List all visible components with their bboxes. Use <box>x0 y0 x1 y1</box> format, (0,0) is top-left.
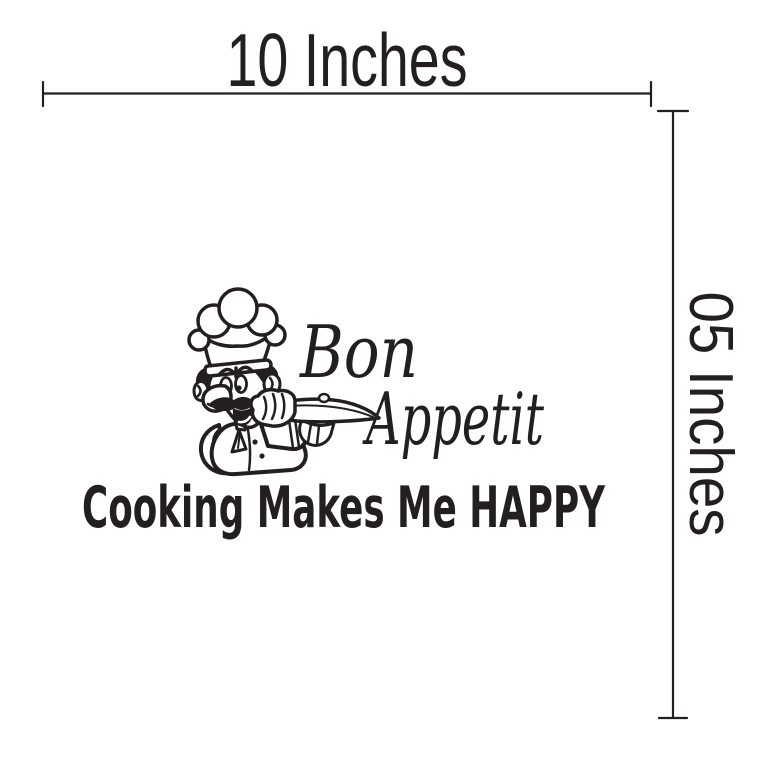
chef-jacket-button <box>252 439 257 444</box>
decal-diagram: 10 Inches 05 Inches <box>0 0 768 768</box>
chef-pupil-right <box>236 385 241 390</box>
chef-jacket-button <box>259 453 264 458</box>
decal-script-appetit: Appetit <box>362 377 545 461</box>
decal-tagline: Cooking Makes Me HAPPY <box>82 475 605 541</box>
height-dimension: 05 Inches <box>658 111 745 718</box>
width-dimension: 10 Inches <box>43 18 651 106</box>
chef-eye-right <box>236 376 247 393</box>
chef-hat-puff <box>219 289 257 327</box>
product-sizing-image: 10 Inches 05 Inches <box>0 0 768 768</box>
chef-tray-knob <box>319 394 329 402</box>
height-dimension-label: 05 Inches <box>676 292 745 537</box>
width-dimension-label: 10 Inches <box>227 18 468 102</box>
